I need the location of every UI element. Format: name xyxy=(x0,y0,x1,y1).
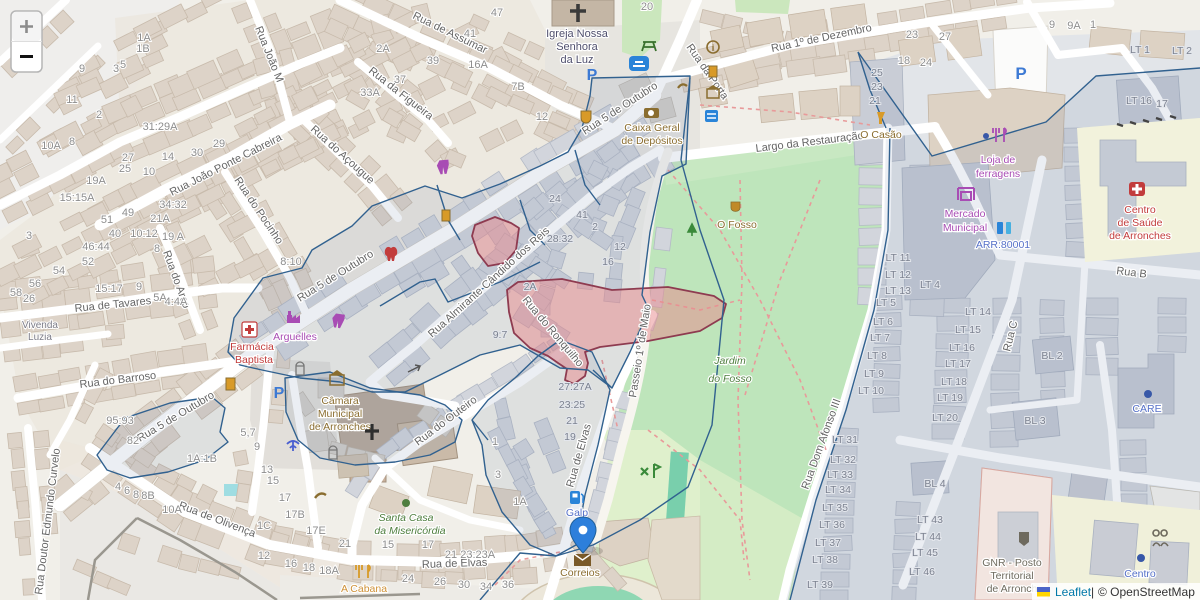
svg-text:21: 21 xyxy=(869,95,881,107)
svg-text:18A: 18A xyxy=(319,565,339,577)
svg-text:P: P xyxy=(274,385,285,402)
svg-text:LT 16: LT 16 xyxy=(949,342,975,354)
svg-text:2: 2 xyxy=(592,221,598,233)
svg-text:8:10: 8:10 xyxy=(280,256,301,268)
svg-text:LT 35: LT 35 xyxy=(822,502,848,514)
svg-text:LT 38: LT 38 xyxy=(812,554,838,566)
svg-text:14: 14 xyxy=(162,151,174,163)
svg-text:© OpenStreetMap: © OpenStreetMap xyxy=(1098,585,1195,599)
svg-text:O Casão: O Casão xyxy=(860,129,902,141)
svg-text:Luzia: Luzia xyxy=(28,332,52,343)
svg-text:|: | xyxy=(1091,585,1094,599)
svg-text:LT 43: LT 43 xyxy=(917,514,943,526)
svg-text:BL 3: BL 3 xyxy=(1024,415,1045,427)
svg-text:17: 17 xyxy=(1156,98,1168,110)
svg-text:1: 1 xyxy=(1090,19,1096,31)
svg-text:i: i xyxy=(712,43,715,53)
svg-text:Centro: Centro xyxy=(1124,568,1156,580)
svg-text:51: 51 xyxy=(101,214,113,226)
svg-text:BL 4: BL 4 xyxy=(924,478,945,490)
svg-text:LT 1: LT 1 xyxy=(1130,44,1150,56)
svg-text:O Fosso: O Fosso xyxy=(717,219,757,231)
svg-text:18: 18 xyxy=(303,562,315,574)
svg-text:LT 31: LT 31 xyxy=(832,434,858,446)
svg-text:10A: 10A xyxy=(41,140,61,152)
svg-text:Loja de: Loja de xyxy=(981,154,1016,166)
svg-text:Municipal: Municipal xyxy=(318,408,362,420)
svg-text:Igreja Nossa: Igreja Nossa xyxy=(546,28,609,40)
svg-text:41: 41 xyxy=(464,28,476,40)
svg-text:8: 8 xyxy=(69,136,75,148)
svg-text:1C: 1C xyxy=(257,520,271,532)
svg-text:16: 16 xyxy=(602,256,614,268)
svg-text:1A: 1A xyxy=(513,496,527,508)
svg-text:LT 16: LT 16 xyxy=(1126,95,1152,107)
svg-text:21 23:23A: 21 23:23A xyxy=(445,549,496,561)
svg-text:12: 12 xyxy=(258,550,270,562)
svg-text:21A: 21A xyxy=(150,213,170,225)
svg-text:15:17: 15:17 xyxy=(95,283,123,295)
svg-text:12: 12 xyxy=(536,111,548,123)
svg-text:39: 39 xyxy=(427,55,439,67)
svg-text:1: 1 xyxy=(492,436,498,448)
svg-text:Câmara: Câmara xyxy=(321,395,359,407)
svg-text:9: 9 xyxy=(1049,19,1055,31)
svg-text:3: 3 xyxy=(495,469,501,481)
svg-text:19 A: 19 A xyxy=(162,231,185,243)
svg-text:Leaflet: Leaflet xyxy=(1055,585,1092,599)
svg-text:9A: 9A xyxy=(1067,20,1081,32)
svg-text:LT 10: LT 10 xyxy=(858,385,884,397)
svg-text:23:25: 23:25 xyxy=(559,399,585,411)
svg-text:LT 15: LT 15 xyxy=(955,324,981,336)
svg-text:23: 23 xyxy=(906,29,918,41)
svg-text:3: 3 xyxy=(26,230,32,242)
svg-text:24: 24 xyxy=(549,193,561,205)
svg-text:4:4A: 4:4A xyxy=(165,296,188,308)
svg-text:24: 24 xyxy=(402,573,414,585)
svg-text:17: 17 xyxy=(422,539,434,551)
svg-text:27: 27 xyxy=(939,31,951,43)
svg-text:8: 8 xyxy=(133,489,139,501)
svg-text:de Arronch: de Arronch xyxy=(987,583,1038,595)
svg-text:LT 39: LT 39 xyxy=(807,579,833,591)
svg-text:ferragens: ferragens xyxy=(976,168,1020,180)
svg-text:40: 40 xyxy=(109,228,121,240)
svg-text:95:93: 95:93 xyxy=(106,415,134,427)
svg-text:54: 54 xyxy=(53,265,65,277)
svg-text:82: 82 xyxy=(127,435,139,447)
svg-text:LT 2: LT 2 xyxy=(1172,45,1192,57)
svg-text:1A:1B: 1A:1B xyxy=(187,453,217,465)
svg-text:5: 5 xyxy=(120,59,126,71)
svg-text:25: 25 xyxy=(871,67,883,79)
svg-text:34: 34 xyxy=(480,581,492,593)
svg-text:Santa Casa: Santa Casa xyxy=(379,512,434,524)
svg-text:15: 15 xyxy=(267,475,279,487)
svg-text:2: 2 xyxy=(96,109,102,121)
svg-text:BL 2: BL 2 xyxy=(1041,350,1062,362)
svg-text:LT 12: LT 12 xyxy=(885,269,911,281)
svg-text:7B: 7B xyxy=(511,81,524,93)
svg-text:5,7: 5,7 xyxy=(240,427,255,439)
svg-text:LT 32: LT 32 xyxy=(830,454,856,466)
svg-text:LT 11: LT 11 xyxy=(885,252,910,264)
svg-text:46:44: 46:44 xyxy=(82,241,110,253)
svg-text:21: 21 xyxy=(566,415,578,427)
svg-text:LT 17: LT 17 xyxy=(945,358,971,370)
svg-text:Caixa Geral: Caixa Geral xyxy=(624,122,679,134)
svg-text:LT 44: LT 44 xyxy=(915,531,941,543)
svg-text:Territorial: Territorial xyxy=(990,570,1033,582)
svg-text:LT 33: LT 33 xyxy=(827,469,853,481)
svg-text:12: 12 xyxy=(614,241,626,253)
svg-text:34:32: 34:32 xyxy=(159,199,187,211)
svg-text:9: 9 xyxy=(136,281,142,293)
svg-text:25: 25 xyxy=(119,163,131,175)
svg-text:23: 23 xyxy=(871,81,883,93)
svg-text:Municipal: Municipal xyxy=(943,222,987,234)
svg-text:LT 14: LT 14 xyxy=(965,306,991,318)
svg-text:58: 58 xyxy=(10,287,22,299)
svg-text:Farmácia: Farmácia xyxy=(230,341,274,353)
svg-text:P: P xyxy=(1015,64,1026,83)
svg-text:CARE: CARE xyxy=(1132,403,1161,415)
svg-text:6: 6 xyxy=(124,485,130,497)
svg-text:8B: 8B xyxy=(141,490,154,502)
svg-text:26: 26 xyxy=(434,576,446,588)
svg-text:LT 34: LT 34 xyxy=(825,484,851,496)
svg-text:15: 15 xyxy=(382,539,394,551)
svg-text:49: 49 xyxy=(122,207,134,219)
svg-text:17: 17 xyxy=(279,492,291,504)
svg-text:LT 9: LT 9 xyxy=(864,368,884,380)
svg-text:19: 19 xyxy=(564,431,576,443)
svg-text:LT 36: LT 36 xyxy=(819,519,845,531)
svg-text:36: 36 xyxy=(502,579,514,591)
svg-text:15:15A: 15:15A xyxy=(60,192,96,204)
svg-text:LT 19: LT 19 xyxy=(937,392,963,404)
svg-text:41: 41 xyxy=(576,209,588,221)
svg-text:47: 47 xyxy=(491,7,503,19)
svg-text:4: 4 xyxy=(115,481,121,493)
svg-text:LT 5: LT 5 xyxy=(876,297,896,309)
svg-text:10A: 10A xyxy=(162,504,182,516)
svg-text:56: 56 xyxy=(29,278,41,290)
svg-text:da Misericórdia: da Misericórdia xyxy=(374,525,445,537)
svg-text:de Arronches: de Arronches xyxy=(309,421,371,433)
svg-text:do Fosso: do Fosso xyxy=(708,373,751,385)
svg-text:11: 11 xyxy=(66,94,77,106)
svg-text:Vivenda: Vivenda xyxy=(22,320,58,331)
svg-text:Jardim: Jardim xyxy=(713,355,746,367)
svg-text:29: 29 xyxy=(213,138,225,150)
svg-text:A Cabana: A Cabana xyxy=(341,583,387,595)
svg-text:16A: 16A xyxy=(468,59,488,71)
svg-text:9:7: 9:7 xyxy=(493,329,508,341)
svg-text:30: 30 xyxy=(191,147,203,159)
svg-text:Senhora: Senhora xyxy=(556,41,598,53)
svg-text:16: 16 xyxy=(285,558,297,570)
svg-text:31:29A: 31:29A xyxy=(143,121,179,133)
svg-text:LT 18: LT 18 xyxy=(941,376,967,388)
svg-text:21: 21 xyxy=(339,538,351,550)
svg-text:ARR:80001: ARR:80001 xyxy=(976,239,1030,251)
svg-text:37: 37 xyxy=(394,74,406,86)
svg-text:3: 3 xyxy=(113,63,119,75)
svg-text:LT 45: LT 45 xyxy=(912,547,938,559)
svg-text:10:12: 10:12 xyxy=(130,228,158,240)
svg-text:LT 8: LT 8 xyxy=(867,350,887,362)
svg-text:10: 10 xyxy=(143,166,155,178)
svg-text:P: P xyxy=(587,67,598,84)
svg-text:LT 37: LT 37 xyxy=(815,537,841,549)
svg-text:27:27A: 27:27A xyxy=(558,381,591,393)
svg-text:da Luz: da Luz xyxy=(560,54,593,66)
svg-text:9: 9 xyxy=(79,63,85,75)
svg-text:19A: 19A xyxy=(86,175,106,187)
svg-text:17E: 17E xyxy=(306,525,326,537)
svg-text:18: 18 xyxy=(898,55,910,67)
svg-text:LT 4: LT 4 xyxy=(920,279,940,291)
svg-text:LT 46: LT 46 xyxy=(909,566,935,578)
svg-text:Mercado: Mercado xyxy=(945,208,986,220)
svg-text:17B: 17B xyxy=(285,509,305,521)
svg-text:LT 20: LT 20 xyxy=(932,412,958,424)
svg-text:LT 13: LT 13 xyxy=(885,285,911,297)
svg-text:20: 20 xyxy=(641,1,653,13)
svg-text:Arguelles: Arguelles xyxy=(273,331,317,343)
svg-text:2A: 2A xyxy=(376,43,390,55)
svg-text:52: 52 xyxy=(82,256,94,268)
svg-text:1B: 1B xyxy=(136,43,149,55)
svg-text:de Depósitos: de Depósitos xyxy=(621,135,682,147)
svg-text:de Arronches: de Arronches xyxy=(1109,230,1171,242)
svg-text:8: 8 xyxy=(154,243,160,255)
svg-text:30: 30 xyxy=(458,579,470,591)
svg-text:24: 24 xyxy=(920,57,932,69)
svg-text:2A: 2A xyxy=(524,281,537,293)
svg-text:de Saúde: de Saúde xyxy=(1118,217,1163,229)
svg-text:GNR - Posto: GNR - Posto xyxy=(982,557,1042,569)
svg-text:LT 6: LT 6 xyxy=(873,316,893,328)
svg-text:Centro: Centro xyxy=(1124,204,1156,216)
svg-text:9: 9 xyxy=(254,441,260,453)
svg-text:26: 26 xyxy=(23,293,35,305)
svg-text:28:32: 28:32 xyxy=(547,233,573,245)
svg-text:Baptista: Baptista xyxy=(235,354,273,366)
svg-text:33A: 33A xyxy=(360,87,380,99)
svg-text:LT 7: LT 7 xyxy=(870,332,890,344)
svg-text:Correios: Correios xyxy=(560,567,600,579)
